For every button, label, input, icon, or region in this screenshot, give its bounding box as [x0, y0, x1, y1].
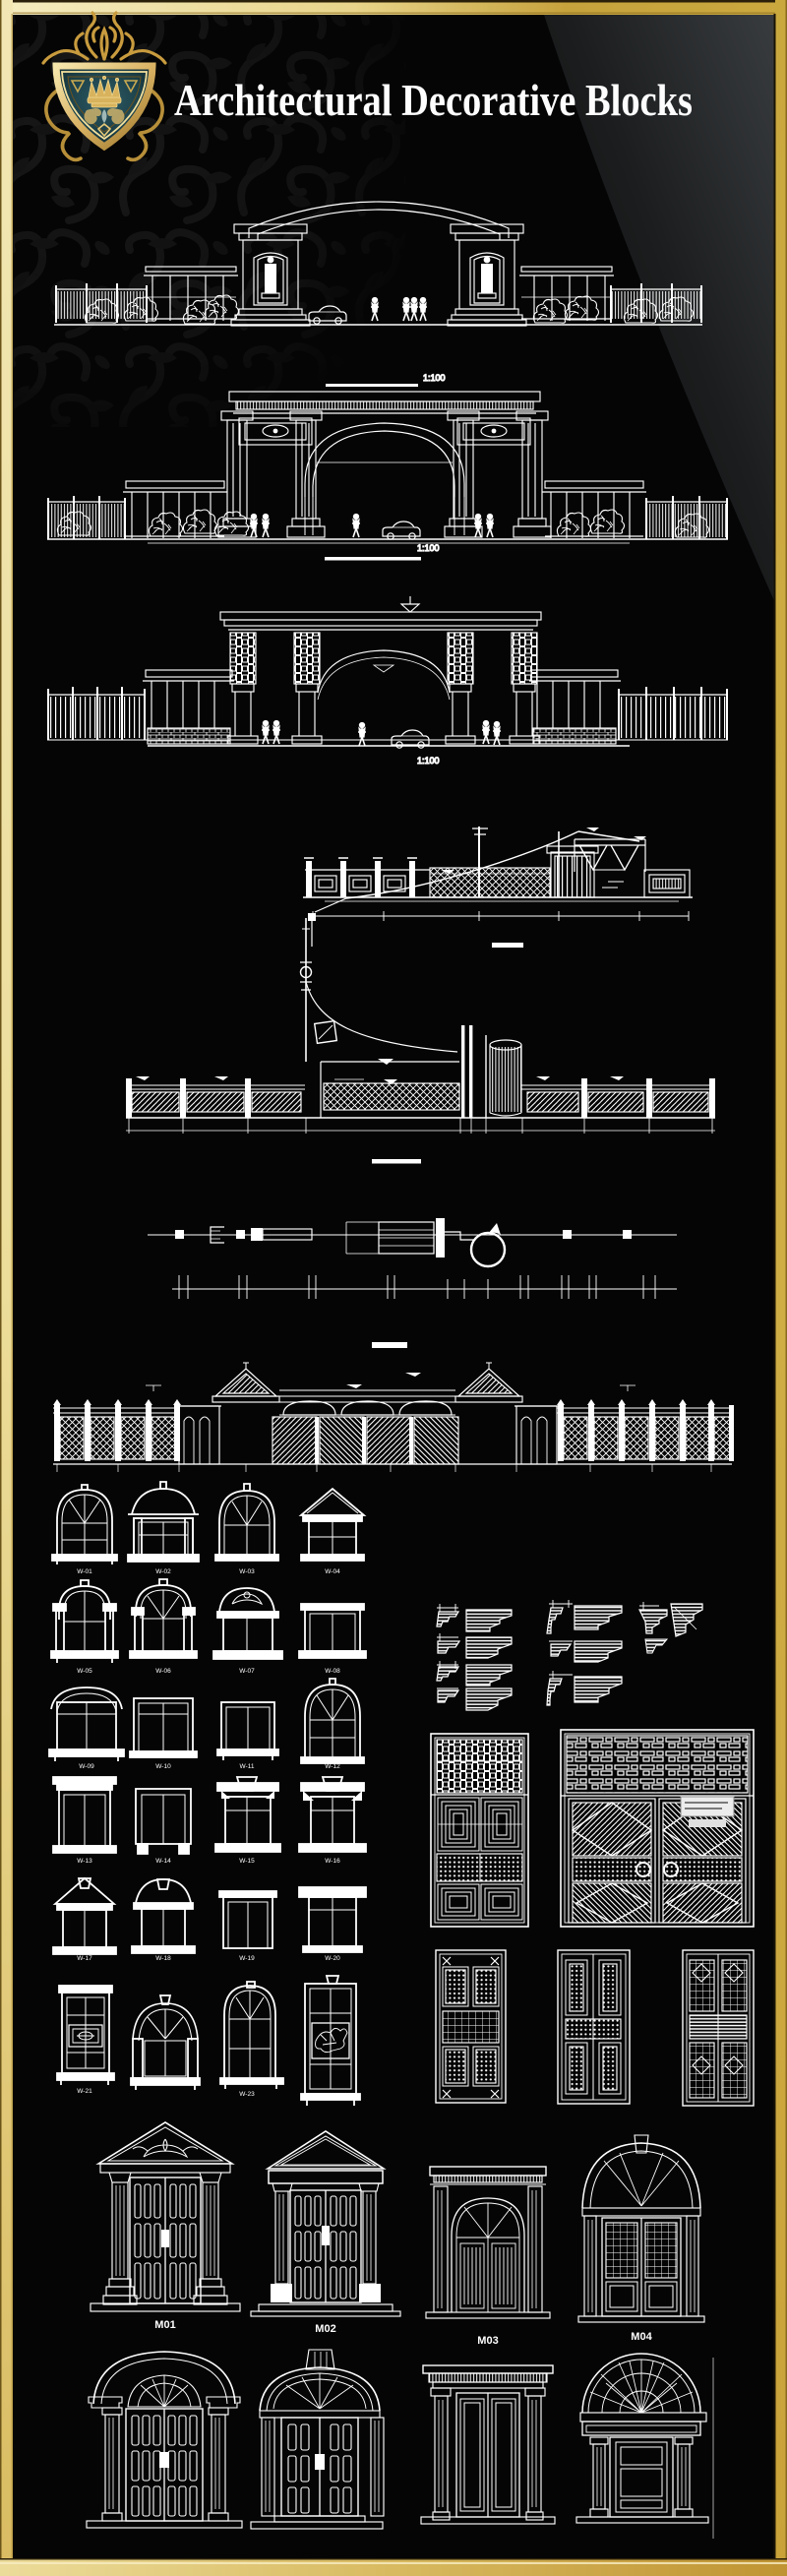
- svg-text:M04: M04: [631, 2331, 652, 2343]
- svg-text:1:100: 1:100: [417, 756, 440, 766]
- svg-text:W-12: W-12: [325, 1763, 340, 1770]
- svg-text:W-16: W-16: [325, 1858, 340, 1865]
- svg-text:W-19: W-19: [239, 1955, 255, 1962]
- svg-text:W-01: W-01: [77, 1568, 92, 1575]
- svg-text:W-23: W-23: [239, 2091, 255, 2098]
- svg-text:1:100: 1:100: [423, 373, 446, 383]
- svg-text:W-09: W-09: [79, 1763, 94, 1770]
- svg-text:W-03: W-03: [239, 1568, 255, 1575]
- svg-text:W-20: W-20: [325, 1955, 340, 1962]
- svg-text:W-15: W-15: [239, 1858, 255, 1865]
- svg-text:W-07: W-07: [239, 1668, 255, 1675]
- svg-text:W-06: W-06: [155, 1668, 171, 1675]
- svg-text:W-14: W-14: [155, 1858, 171, 1865]
- svg-text:M03: M03: [477, 2335, 498, 2347]
- svg-text:W-13: W-13: [77, 1858, 92, 1865]
- svg-text:W-05: W-05: [77, 1668, 92, 1675]
- svg-text:M02: M02: [315, 2323, 335, 2335]
- svg-text:W-10: W-10: [155, 1763, 171, 1770]
- svg-text:W-21: W-21: [77, 2088, 92, 2095]
- svg-text:W-02: W-02: [155, 1568, 171, 1575]
- svg-text:M01: M01: [154, 2319, 175, 2331]
- svg-text:W-08: W-08: [325, 1668, 340, 1675]
- svg-text:W-04: W-04: [325, 1568, 340, 1575]
- svg-text:Architectural Decorative Block: Architectural Decorative Blocks: [174, 76, 693, 125]
- svg-text:W-11: W-11: [240, 1763, 255, 1770]
- svg-text:W-18: W-18: [155, 1955, 171, 1962]
- svg-text:W-17: W-17: [77, 1955, 92, 1962]
- svg-text:1:100: 1:100: [417, 543, 440, 553]
